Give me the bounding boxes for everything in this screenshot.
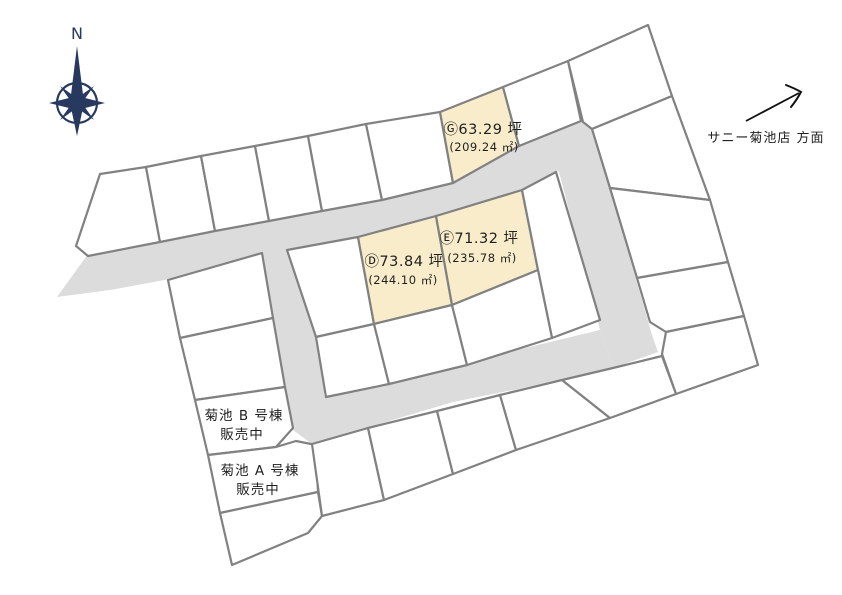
kikuchi-b-label-line2: 販売中 (220, 427, 264, 443)
compass-north-label: N (71, 24, 83, 43)
kikuchi-b-label-line1: 菊池 B 号棟 (205, 408, 284, 424)
lot-d-label-line2: (244.10 ㎡) (368, 273, 437, 287)
compass-center-dot (71, 97, 83, 109)
lot-e-label-line2: (235.78 ㎡) (447, 251, 516, 265)
lot-d-label-line1: Ⓓ73.84 坪 (364, 253, 443, 270)
compass-spike-1 (70, 46, 84, 103)
kikuchi-a-label-line2: 販売中 (236, 482, 280, 498)
lot-g-label-line2: (209.24 ㎡) (449, 140, 518, 154)
lot-top-6 (366, 112, 453, 200)
direction-sign: サニー菊池店 方面 (707, 85, 824, 146)
direction-sign-label: サニー菊池店 方面 (707, 130, 824, 146)
kikuchi-a-label-line1: 菊池 A 号棟 (221, 463, 300, 479)
lot-e-label-line1: Ⓔ71.32 坪 (439, 230, 518, 247)
site-plan-canvas: Ⓖ63.29 坪(209.24 ㎡)Ⓓ73.84 坪(244.10 ㎡)Ⓔ71.… (0, 0, 842, 595)
compass-rose-icon: N (49, 24, 105, 136)
lot-g-label-line1: Ⓖ63.29 坪 (443, 121, 522, 138)
site-map: Ⓖ63.29 坪(209.24 ㎡)Ⓓ73.84 坪(244.10 ㎡)Ⓔ71.… (0, 0, 842, 595)
